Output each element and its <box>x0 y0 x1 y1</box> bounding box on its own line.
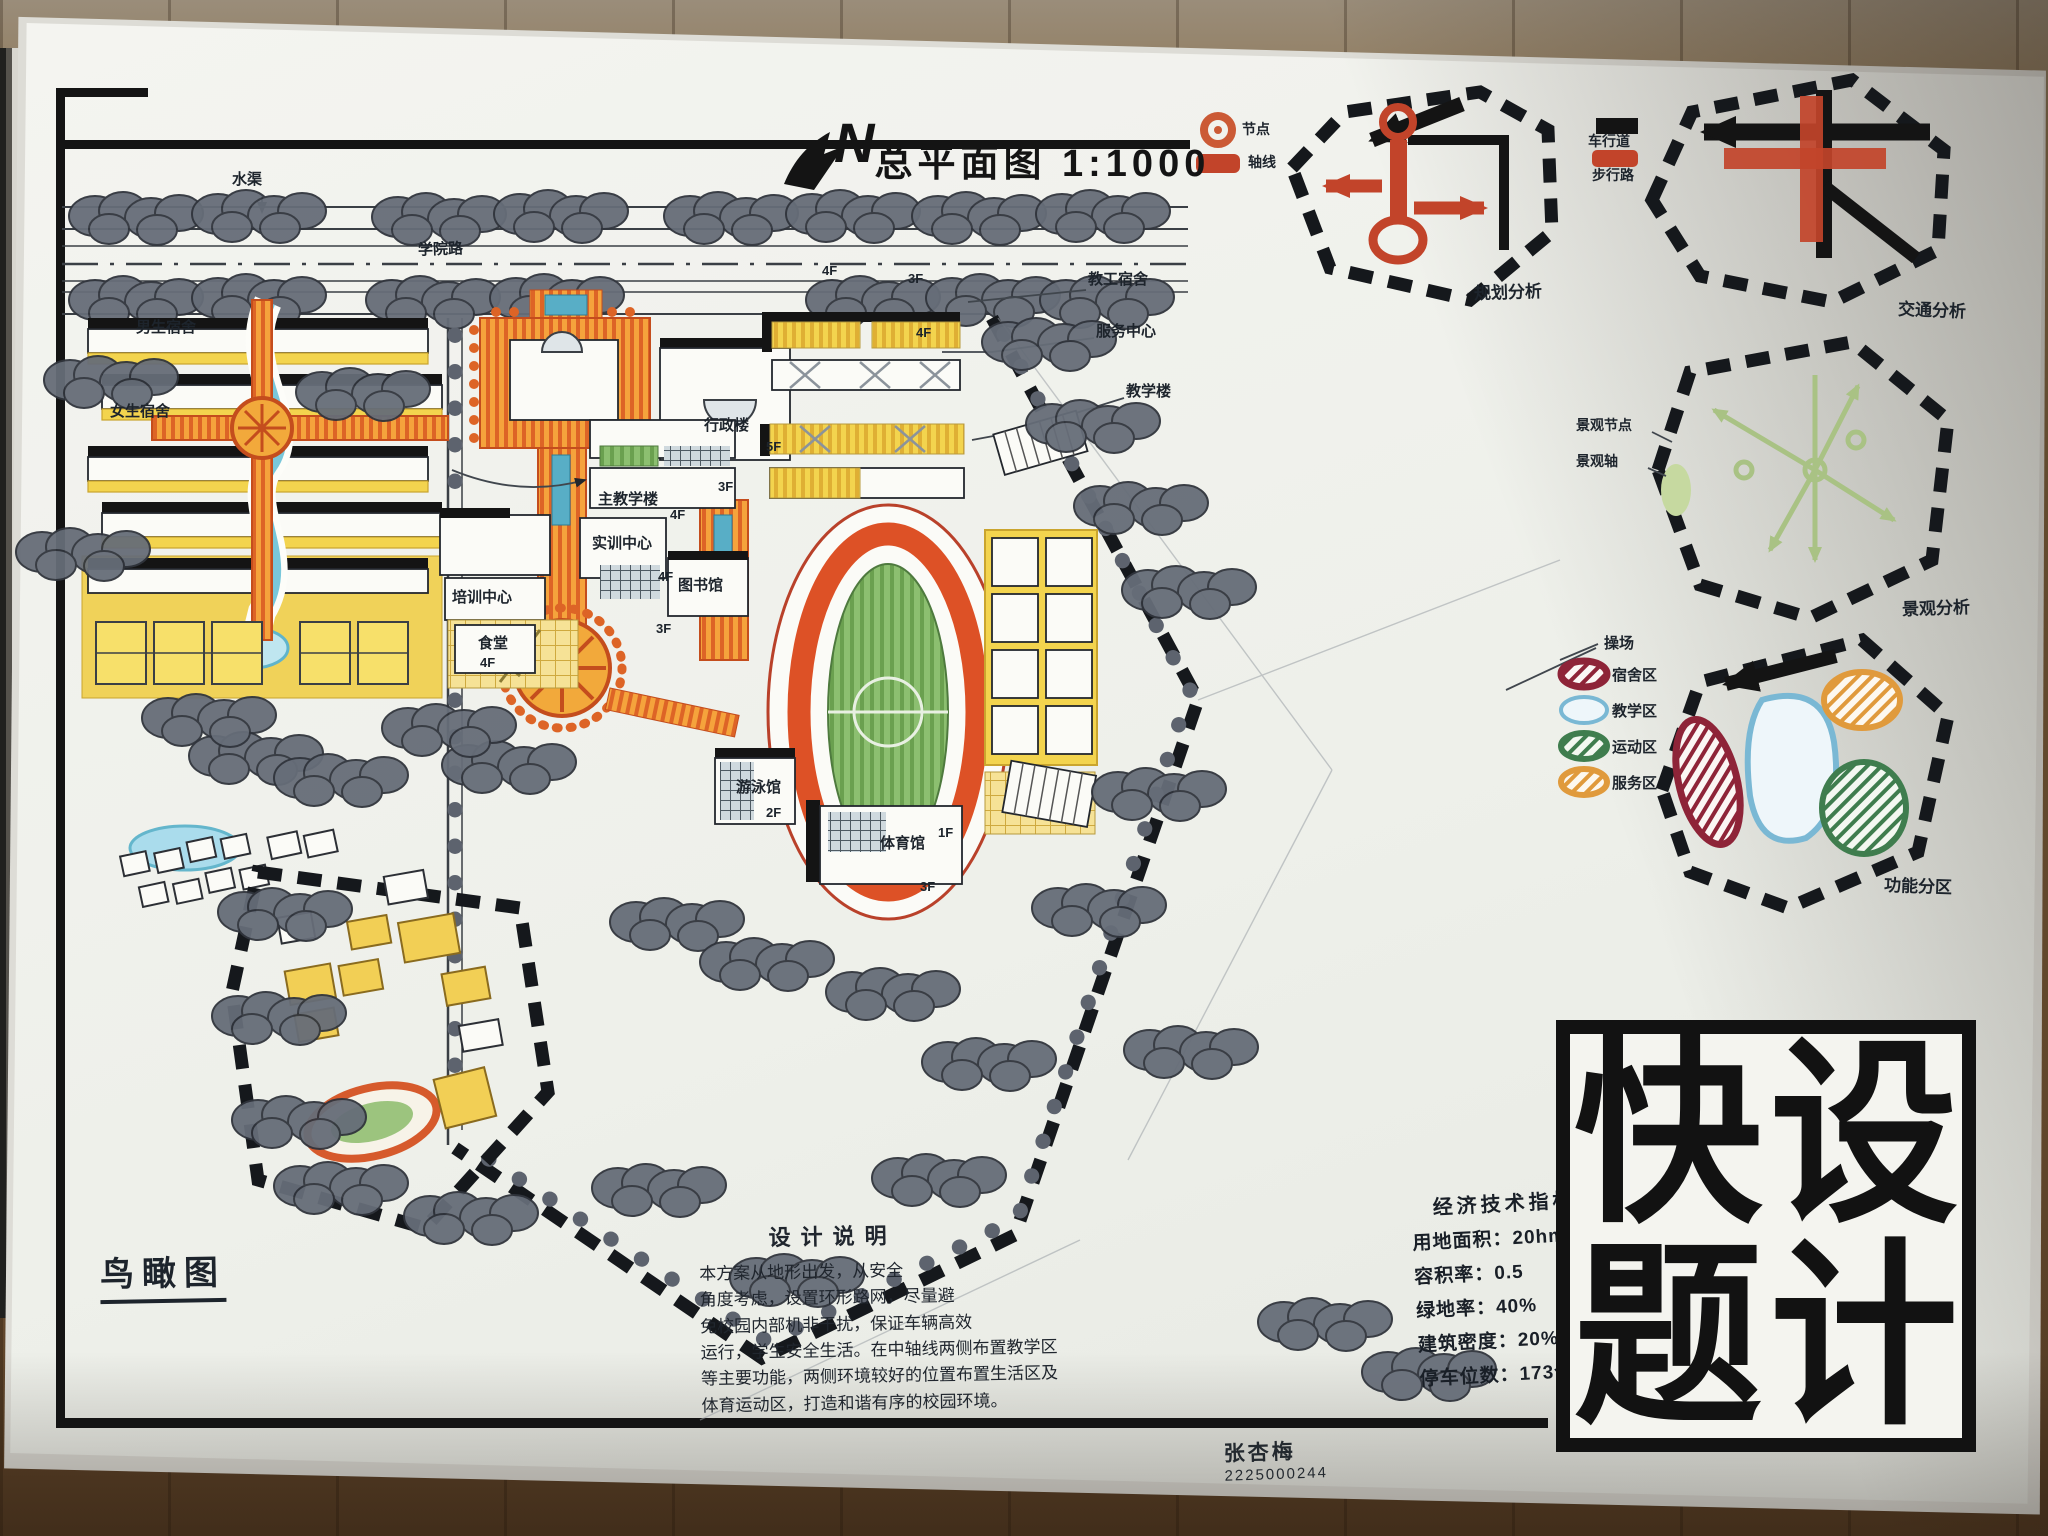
signature-id: 2225000244 <box>1224 1464 1328 1485</box>
admin-building-label: 行政楼 <box>704 418 749 434</box>
floor-tag: 1F <box>938 826 953 840</box>
signature: 张杏梅 2225000244 <box>1223 1434 1328 1485</box>
legend-vehicle-label: 车行道 <box>1588 134 1630 149</box>
zone-teaching-label: 教学区 <box>1612 700 1657 721</box>
library-label: 图书馆 <box>678 578 723 594</box>
training-center-label: 实训中心 <box>592 536 652 552</box>
logotype-char: 题 <box>1574 1253 1762 1422</box>
indicator-label: 停车位数： <box>1419 1364 1520 1390</box>
floor-tag: 5F <box>766 440 781 454</box>
floor-tag: 4F <box>658 570 673 584</box>
zone-sports-label: 运动区 <box>1612 736 1657 757</box>
analysis-landscape-title: 景观分析 <box>1902 599 1971 619</box>
design-notes-body: 本方案从地形出发，从安全 角度考虑，设置环形路网，尽量避 免校园内部机非干扰，保… <box>699 1255 1102 1420</box>
zone-dormitory-label: 宿舍区 <box>1612 664 1657 685</box>
indicator-value: 20% <box>1517 1328 1559 1351</box>
analysis-zoning-title: 功能分区 <box>1884 877 1953 897</box>
logotype-char: 设 <box>1770 1051 1958 1220</box>
sports-courts-west <box>96 622 408 684</box>
analysis-traffic-diagram <box>1652 80 1944 302</box>
staff-dorm-label: 教工宿舍 <box>1088 272 1148 288</box>
zone-service-label: 服务区 <box>1612 772 1657 793</box>
college-road-label: 学院路 <box>418 241 464 258</box>
desk-photo: .dots{stroke:#5d636e;stroke-width:17;str… <box>0 0 2048 1536</box>
floor-tag: 4F <box>480 656 495 670</box>
floor-tag: 3F <box>920 880 935 894</box>
teaching-building-label: 教学楼 <box>1126 384 1171 400</box>
legend-axis-label: 轴线 <box>1248 155 1276 170</box>
legend-pedestrian-label: 步行路 <box>1592 168 1634 183</box>
dormitory-cluster <box>82 300 448 698</box>
plan-title: 总平面图 1:1000 <box>874 132 1210 187</box>
plan-title-block: N 总平面图 1:1000 <box>770 118 1210 187</box>
analysis-planning-diagram <box>1292 92 1552 300</box>
indicator-row: 用地面积：20hm² <box>1412 1220 1579 1256</box>
indicator-value: 40% <box>1496 1295 1538 1318</box>
indicator-label: 建筑密度： <box>1417 1330 1518 1356</box>
design-notes-title: 设计说明 <box>768 1215 1099 1253</box>
coaching-center-label: 培训中心 <box>452 590 512 606</box>
landscape-axis-label: 景观轴 <box>1576 454 1618 469</box>
floor-tag: 4F <box>670 508 685 522</box>
analysis-landscape-diagram <box>1648 342 1948 618</box>
birdseye-sketch <box>120 812 548 1245</box>
floor-tag: 3F <box>656 622 671 636</box>
service-center-label: 服务中心 <box>1096 324 1156 340</box>
analysis-planning-title: 规划分析 <box>1474 283 1543 303</box>
floor-tag: 3F <box>718 480 733 494</box>
male-dorm-label: 男生宿舍 <box>136 320 196 336</box>
design-notes: 设计说明 本方案从地形出发，从安全 角度考虑，设置环形路网，尽量避 免校园内部机… <box>698 1215 1101 1420</box>
indicator-label: 用地面积： <box>1412 1228 1513 1254</box>
signature-name: 张杏梅 <box>1223 1434 1327 1468</box>
landscape-node-label: 景观节点 <box>1576 418 1632 433</box>
gymnasium-label: 体育馆 <box>880 836 925 852</box>
floor-tag: 3F <box>908 272 923 286</box>
logotype-char: 快 <box>1574 1051 1762 1220</box>
indicator-value: 0.5 <box>1494 1262 1524 1285</box>
indicator-label: 绿地率： <box>1416 1297 1497 1322</box>
legend-symbols <box>1196 116 1638 795</box>
canteen-label: 食堂 <box>478 636 508 652</box>
floor-tag: 4F <box>822 264 837 278</box>
natatorium-label: 游泳馆 <box>736 780 781 796</box>
floor-tag: 2F <box>766 806 781 820</box>
north-letter: N <box>834 118 870 168</box>
water-channel-label: 水渠 <box>232 172 262 188</box>
female-dorm-label: 女生宿舍 <box>110 404 170 420</box>
indicator-label: 容积率： <box>1414 1263 1495 1288</box>
playground-label: 操场 <box>1604 632 1634 653</box>
legend-node-label: 节点 <box>1242 122 1270 137</box>
logotype-kuai-ti-she-ji: 快 设 题 计 <box>1556 1020 1976 1452</box>
logotype-char: 计 <box>1770 1253 1958 1422</box>
analysis-traffic-title: 交通分析 <box>1898 301 1967 321</box>
main-teaching-label: 主教学楼 <box>598 492 658 508</box>
birdseye-label: 鸟瞰图 <box>100 1245 227 1304</box>
floor-tag: 4F <box>916 326 931 340</box>
